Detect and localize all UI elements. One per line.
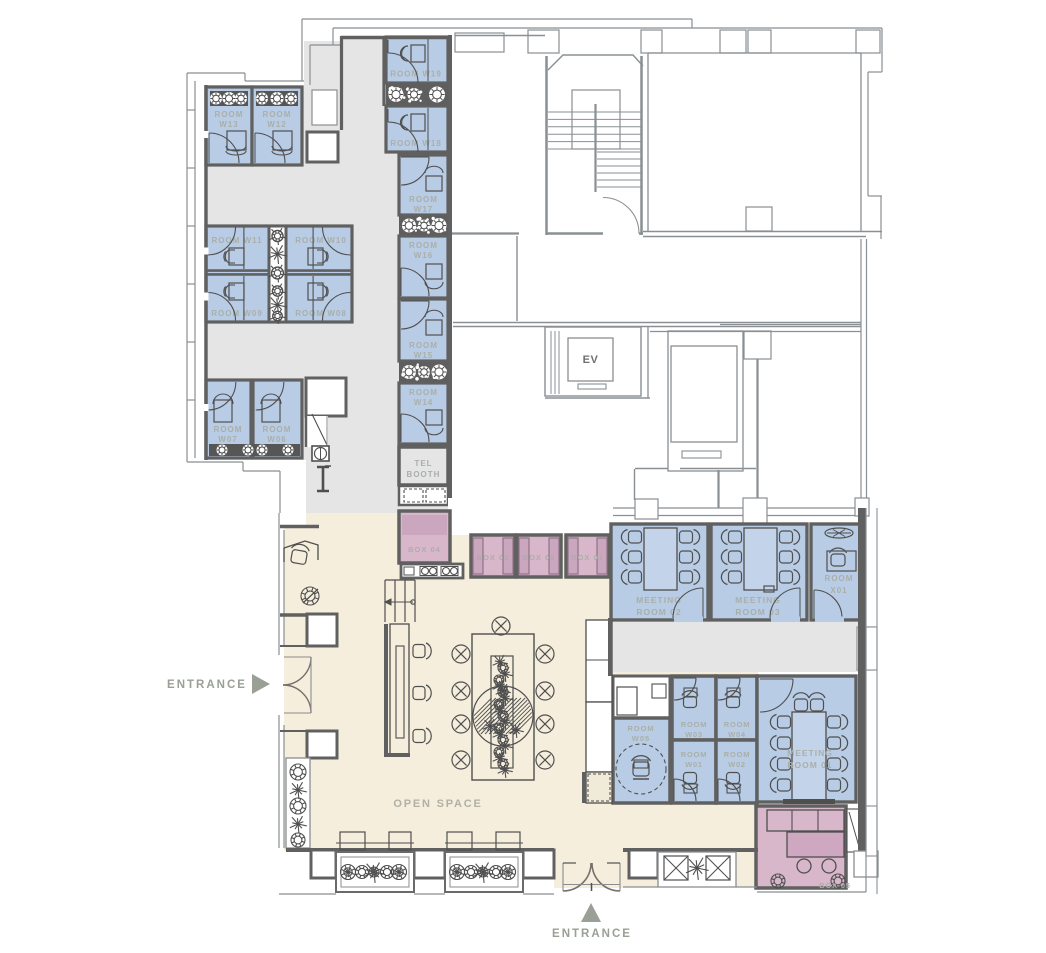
svg-text:ROOM W11: ROOM W11: [211, 236, 262, 245]
svg-text:W03: W03: [685, 730, 703, 739]
svg-text:X01: X01: [830, 586, 847, 595]
svg-text:BOX 03: BOX 03: [477, 553, 510, 562]
svg-text:ROOM: ROOM: [409, 241, 438, 250]
svg-text:ENTRANCE: ENTRANCE: [552, 928, 632, 940]
svg-text:BOOTH: BOOTH: [407, 470, 441, 479]
svg-text:ROOM 01: ROOM 01: [787, 760, 832, 770]
svg-text:ROOM: ROOM: [724, 720, 751, 729]
svg-text:W07: W07: [218, 435, 237, 444]
svg-text:ROOM: ROOM: [627, 724, 654, 733]
svg-text:ROOM: ROOM: [214, 425, 243, 434]
svg-text:BOX 02: BOX 02: [523, 553, 556, 562]
svg-text:ROOM 03: ROOM 03: [735, 607, 780, 617]
svg-text:W16: W16: [414, 251, 433, 260]
svg-text:EV: EV: [583, 354, 599, 366]
svg-text:BOX 01: BOX 01: [571, 553, 604, 562]
svg-text:W14: W14: [414, 398, 433, 407]
svg-text:ROOM: ROOM: [409, 388, 438, 397]
svg-text:ROOM W08: ROOM W08: [295, 309, 347, 318]
svg-text:W05: W05: [632, 734, 650, 743]
svg-text:BOX 04: BOX 04: [408, 545, 441, 554]
svg-text:W06: W06: [267, 435, 286, 444]
svg-text:MEETING: MEETING: [787, 748, 833, 758]
svg-text:ROOM: ROOM: [825, 574, 854, 583]
svg-text:ROOM: ROOM: [724, 750, 751, 759]
svg-text:OPEN SPACE: OPEN SPACE: [393, 798, 482, 810]
svg-text:ROOM: ROOM: [215, 110, 244, 119]
svg-text:ROOM: ROOM: [263, 425, 292, 434]
svg-text:W02: W02: [728, 760, 746, 769]
svg-text:BOX 05: BOX 05: [819, 881, 850, 890]
svg-text:W17: W17: [414, 205, 433, 214]
svg-text:ROOM: ROOM: [409, 341, 438, 350]
svg-text:ROOM: ROOM: [263, 110, 292, 119]
svg-text:W01: W01: [685, 760, 703, 769]
svg-text:W13: W13: [219, 120, 238, 129]
svg-text:TEL: TEL: [414, 459, 432, 468]
svg-text:ROOM: ROOM: [681, 750, 708, 759]
svg-text:ENTRANCE: ENTRANCE: [167, 679, 247, 691]
svg-text:ROOM W09: ROOM W09: [211, 309, 263, 318]
svg-text:W04: W04: [728, 730, 746, 739]
svg-text:W12: W12: [267, 120, 286, 129]
svg-text:W15: W15: [414, 351, 433, 360]
svg-text:ROOM W10: ROOM W10: [295, 236, 347, 245]
svg-text:ROOM: ROOM: [681, 720, 708, 729]
svg-text:MEETING: MEETING: [636, 595, 682, 605]
svg-text:ROOM: ROOM: [409, 195, 438, 204]
